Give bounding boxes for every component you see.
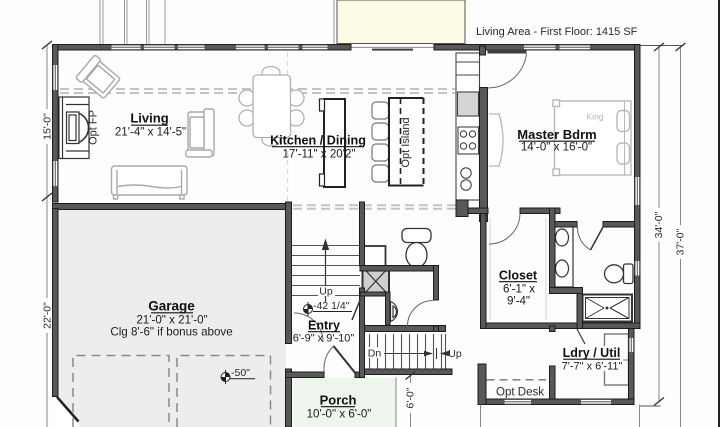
svg-text:Dn: Dn <box>368 348 382 360</box>
svg-text:Clg 8'-6" if bonus above: Clg 8'-6" if bonus above <box>110 326 232 339</box>
svg-text:Porch: Porch <box>320 393 357 408</box>
svg-text:Living: Living <box>130 111 168 126</box>
svg-text:10'-0" x 6'-0": 10'-0" x 6'-0" <box>307 408 372 421</box>
svg-text:Opt Island: Opt Island <box>400 117 412 167</box>
svg-text:King: King <box>586 112 603 122</box>
svg-text:22'-0": 22'-0" <box>41 302 53 329</box>
svg-text:Opt FP: Opt FP <box>88 110 100 145</box>
svg-text:-42 1/4": -42 1/4" <box>313 300 350 312</box>
svg-text:Closet: Closet <box>499 269 538 283</box>
svg-text:Garage: Garage <box>148 299 195 314</box>
svg-text:Up: Up <box>319 286 333 298</box>
svg-text:14'-0" x 16'-0": 14'-0" x 16'-0" <box>521 141 592 154</box>
svg-text:-50": -50" <box>231 367 250 379</box>
svg-text:Ldry / Util: Ldry / Util <box>563 346 621 360</box>
svg-text:Kitchen / Dining: Kitchen / Dining <box>270 134 366 148</box>
svg-text:Living Area - First Floor: 141: Living Area - First Floor: 1415 SF <box>476 26 638 38</box>
svg-text:Entry: Entry <box>308 319 340 333</box>
svg-text:6'-9" x 9'-10": 6'-9" x 9'-10" <box>293 333 355 345</box>
svg-text:34'-0": 34'-0" <box>653 211 665 238</box>
svg-text:6'-0": 6'-0" <box>404 387 416 408</box>
svg-text:37'-0": 37'-0" <box>674 228 686 255</box>
svg-text:Opt Desk: Opt Desk <box>496 387 544 399</box>
svg-text:Up: Up <box>448 348 462 360</box>
svg-text:9'-4": 9'-4" <box>507 295 530 308</box>
svg-text:7'-7" x 6'-11": 7'-7" x 6'-11" <box>562 361 623 373</box>
svg-text:15'-0": 15'-0" <box>41 113 53 140</box>
svg-text:21'-4" x 14'-5": 21'-4" x 14'-5" <box>115 126 186 139</box>
svg-text:17'-11" x 20'2": 17'-11" x 20'2" <box>282 148 355 161</box>
